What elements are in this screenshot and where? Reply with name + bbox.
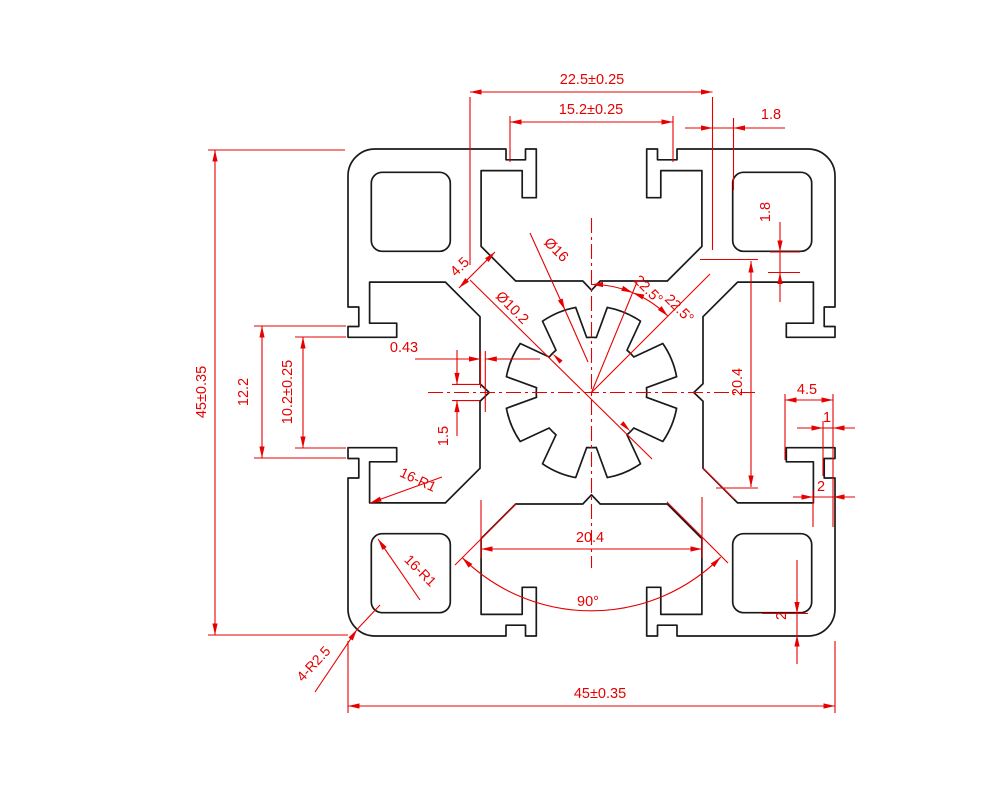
arc-22.5deg-first	[592, 285, 633, 293]
dim-angle-first: 22.5°	[630, 272, 665, 307]
corner-hole-bottom-right	[733, 534, 812, 613]
dim-top-inner: 15.2±0.25	[559, 102, 623, 118]
dimension-labels: 22.5±0.25 15.2±0.25 1.8 45±0.35 12.2 10.…	[194, 72, 831, 702]
dim-top-wall: 1.8	[761, 107, 781, 123]
leader-bore-inner	[470, 280, 652, 459]
dimension-lines	[208, 92, 855, 713]
dim-left-height: 45±0.35	[194, 366, 210, 418]
dim-fillet-hole: 16-R1	[401, 551, 439, 589]
dim-left-slot-outer: 12.2	[236, 378, 252, 406]
dim-top-width: 22.5±0.25	[560, 72, 624, 88]
dim-bore-outer: Ø16	[540, 235, 571, 266]
dim-right-lip-depth: 4.5	[797, 382, 817, 398]
dim-right-wall: 1.8	[758, 202, 774, 222]
dim-bottom-wall-2: 2	[774, 612, 790, 620]
dim-angle-second: 22.5°	[661, 291, 696, 326]
dim-left-slot-opening: 10.2±0.25	[280, 360, 296, 424]
technical-drawing: 22.5±0.25 15.2±0.25 1.8 45±0.35 12.2 10.…	[0, 0, 999, 787]
dim-center-offset: 0.43	[390, 340, 418, 356]
dim-bottom-chamber: 20.4	[576, 530, 604, 546]
drawing-canvas: 22.5±0.25 15.2±0.25 1.8 45±0.35 12.2 10.…	[0, 0, 999, 787]
dim-fillet-corner: 4-R2.5	[293, 643, 334, 685]
dim-right-groove: 1	[823, 410, 831, 426]
dim-right-chamber: 20.4	[730, 368, 746, 396]
dim-web-width: 4.5	[447, 254, 473, 280]
dim-center-notch: 1.5	[436, 426, 452, 446]
dim-bottom-width: 45±0.35	[574, 686, 626, 702]
corner-hole-top-left	[371, 172, 450, 251]
dim-bottom-angle: 90°	[577, 594, 599, 610]
dim-right-wall-2: 2	[817, 479, 825, 495]
